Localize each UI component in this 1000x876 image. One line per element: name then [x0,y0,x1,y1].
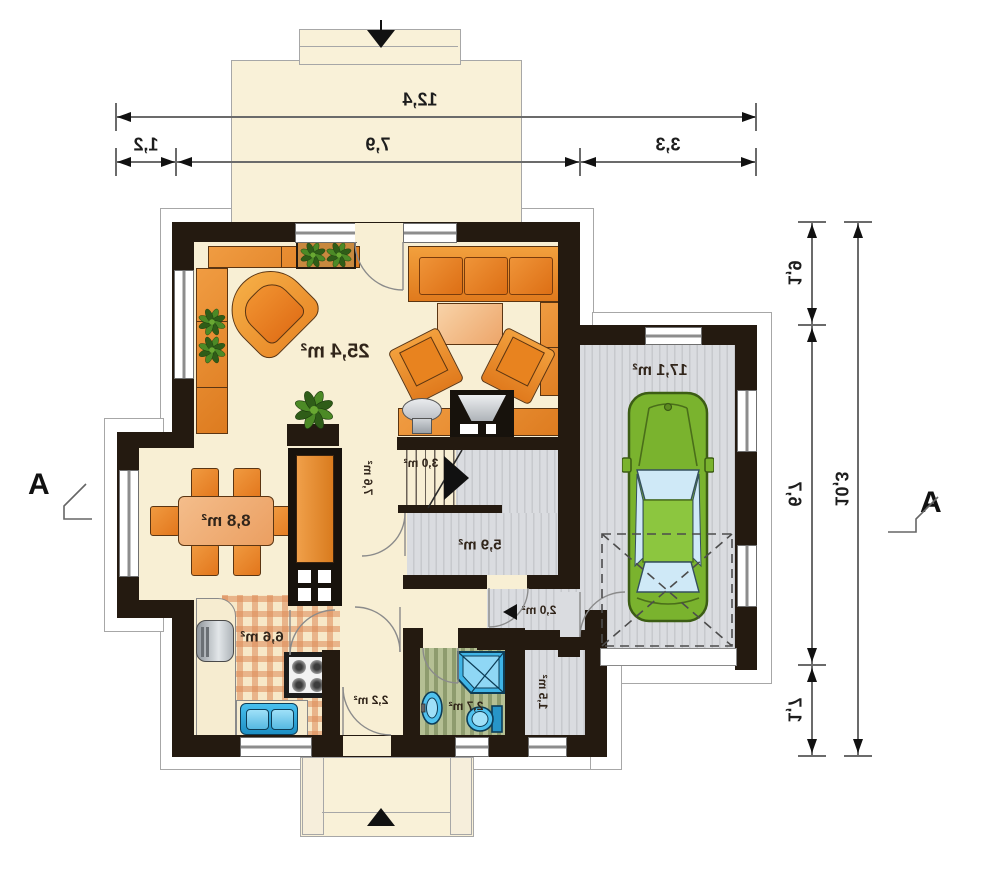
wall-storage-east [585,610,607,757]
car [622,388,714,626]
dim-tick [798,664,826,666]
terrace-door-opening [355,223,403,242]
garage-door [600,648,737,666]
dim-arrow [807,308,817,322]
window-storage-south [528,737,567,757]
window-kitchen-south [240,737,312,757]
dim-arrow [178,157,192,167]
window-garage-north [645,327,702,345]
coffee-table [437,303,503,345]
dim-tick [579,148,581,176]
dim-right-seg2: 6,7 [784,481,805,506]
label-living: 25,4 m² [301,341,370,364]
dim-top-seg1: 1,2 [133,135,158,156]
label-garage-lobby: 2,0 m² [522,603,557,617]
dim-arrow [807,739,817,753]
wall-bathroom-north-left [403,628,423,648]
shower [455,650,507,696]
window-living-north-1 [295,223,357,243]
label-storage: 1,5 m² [536,675,550,710]
section-marker-a-left: A [28,468,50,502]
dim-arrow [807,668,817,682]
dim-arrow [807,224,817,238]
terrace-step-line [300,46,458,47]
label-hall: 5,9 m² [458,537,501,554]
plant-icon [300,242,326,268]
wall-garage-west [558,345,580,588]
label-kitchen: 6,6 m² [240,629,283,646]
porch-column-left [302,757,324,835]
entry-porch [300,757,474,837]
dim-line-top-total [116,116,756,118]
label-hall-upper: 7,6 m² [361,461,375,496]
dim-right-total: 10,3 [831,471,852,506]
wall-garage-east [735,325,757,670]
wall-bathroom-east [505,648,525,757]
dim-top-total: 12,4 [402,90,437,111]
dining-chair [191,544,219,576]
bathroom-sink [421,690,445,726]
wall-bathroom-north-right [458,628,525,648]
sofa-cushion [464,257,508,295]
dim-right-seg3: 1,7 [784,697,805,722]
wall-kitchen-vestibule [322,650,340,737]
porch-column-right [450,757,472,835]
island-top [296,455,334,563]
plant-icon [294,390,334,430]
label-stairs: 3,0 m² [404,456,439,470]
bowl-base [412,418,432,434]
wall-bathroom-west [403,648,420,757]
window-living-west [174,270,194,379]
window-bathroom-south [455,737,489,757]
plant-icon [326,242,352,268]
dining-chair [150,506,180,536]
label-bathroom: 2,7 m² [449,699,484,713]
dim-arrow [117,157,131,167]
dim-tick [798,755,826,757]
kitchen-counter-left [196,598,236,737]
entry-door-opening [343,736,391,756]
dim-arrow [117,112,131,122]
dim-line-top-segments [116,161,756,163]
window-dining-west [119,470,139,577]
sofa-cushion [509,257,553,295]
tv-screen [458,395,506,421]
wall-hall-south-right [527,575,580,589]
wall-hall-south-left [403,575,487,589]
dim-arrow [582,157,596,167]
terrace-step [299,29,461,65]
label-garage: 17,1 m² [632,362,687,380]
tv-speaker [460,424,478,434]
dim-tick [755,148,757,176]
dim-arrow [742,112,756,122]
section-marker-a-right: A [920,486,942,520]
dim-arrow [853,224,863,238]
tv-cabinet [450,390,514,437]
dim-arrow [807,328,817,342]
fridge [196,620,234,662]
dim-arrow [161,157,175,167]
dim-top-seg3: 3,3 [655,135,680,156]
porch-step-line [322,812,450,813]
dim-tick [798,221,826,223]
dim-tick [844,221,872,223]
dim-tick [798,324,826,326]
dim-right-seg1: 1,9 [784,260,805,285]
dim-tick [175,148,177,176]
dim-arrow [741,157,755,167]
kitchen-island [288,448,342,606]
floor-plan-sheet: 25,4 m² 8,8 m² 7,6 m² 3,0 m² 5,9 m² 6,6 … [0,0,1000,876]
sofa [408,246,564,302]
dim-arrow [565,157,579,167]
dim-tick [844,755,872,757]
label-dining: 8,8 m² [201,511,250,531]
sofa-cushion [419,257,463,295]
dim-arrow [807,648,817,662]
tv-speaker [486,424,496,434]
dim-arrow [853,739,863,753]
shelf-divider [197,387,227,388]
plant-icon [198,336,226,364]
wall-living-hall [397,437,580,450]
stairs-landing-wall [398,505,502,513]
window-garage-east-2 [737,545,757,607]
garage-lobby-door-opening [560,592,580,637]
dining-chair [233,544,261,576]
window-living-north-2 [403,223,457,243]
window-garage-east-1 [737,390,757,452]
floor-storage [525,650,585,737]
kitchen-sink [240,703,298,735]
dim-top-seg2: 7,9 [365,135,390,156]
dim-line-right-total [857,222,859,756]
label-vestibule: 2,2 m² [354,693,389,707]
wall-west-lower [172,600,194,757]
